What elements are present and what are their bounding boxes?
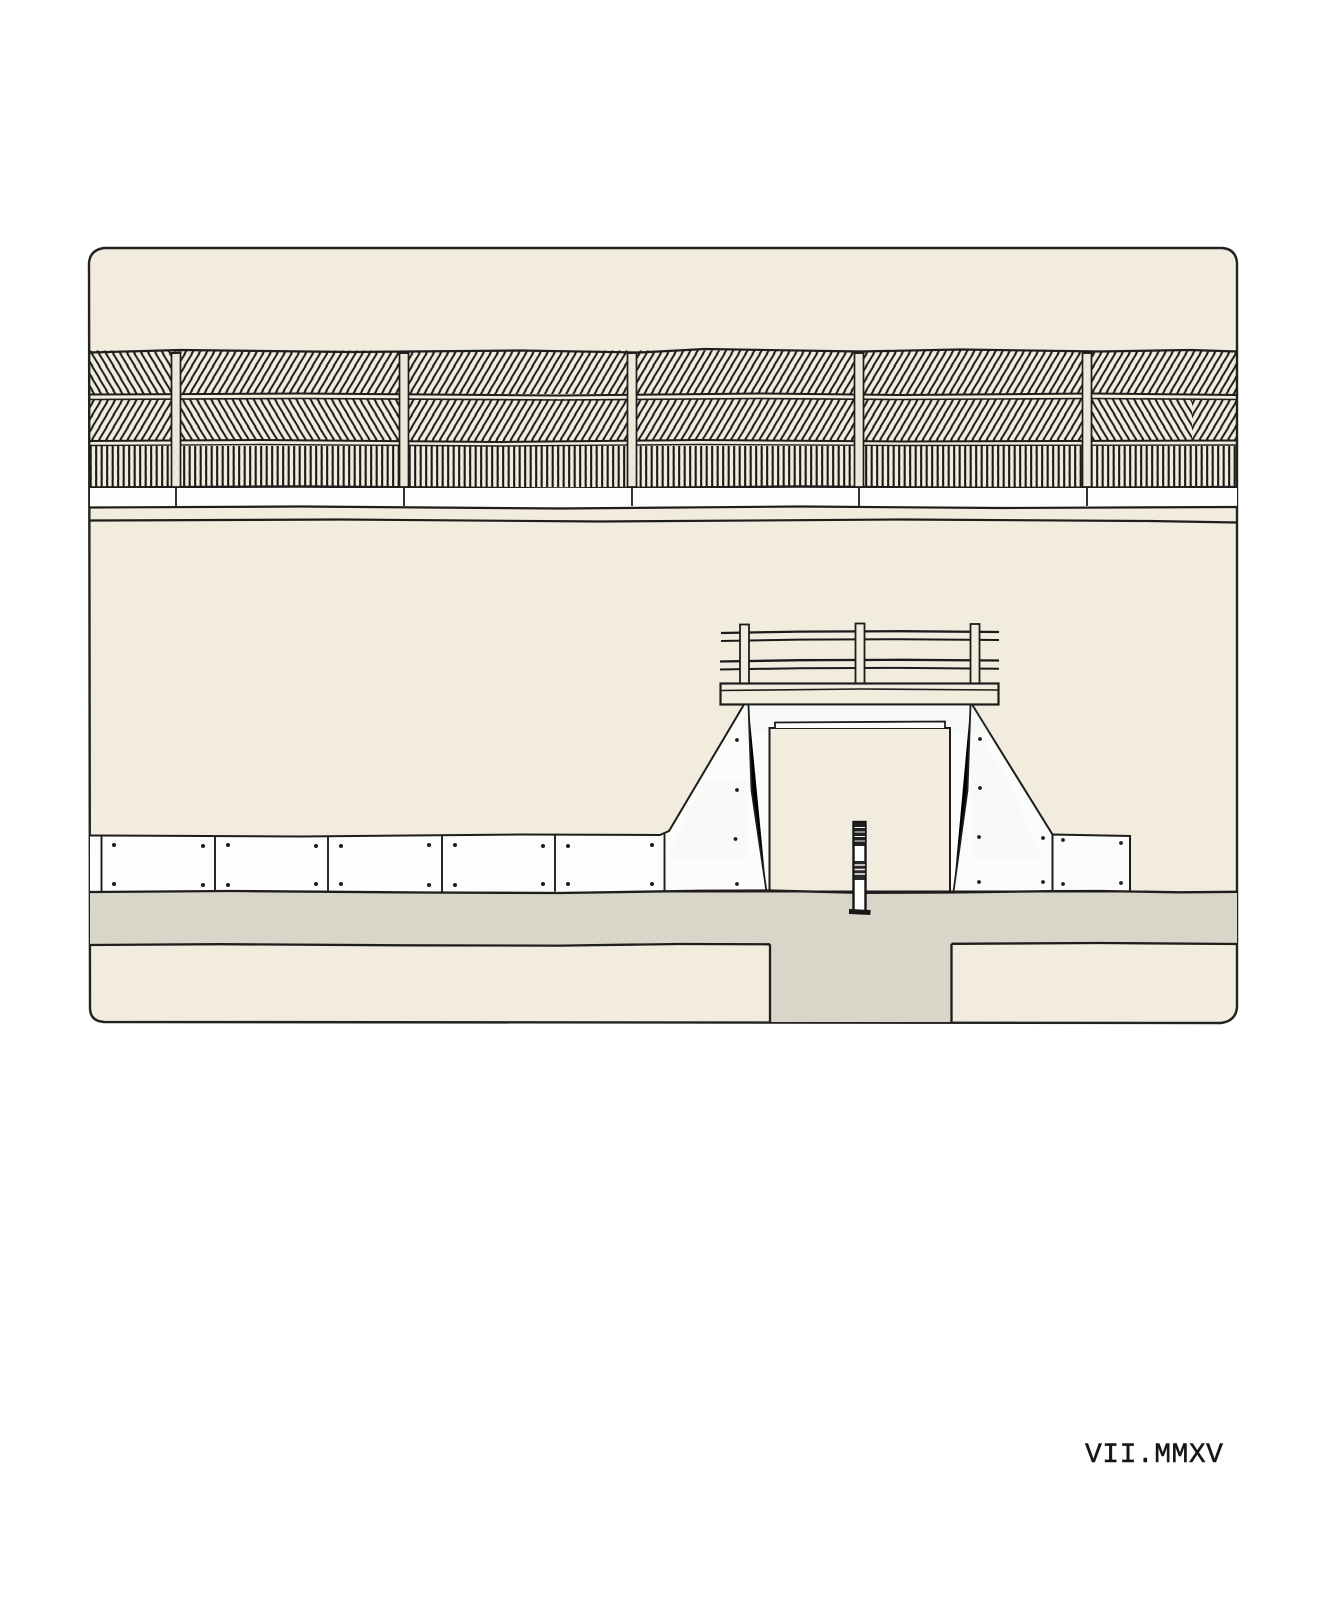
svg-text:VII.MMXV: VII.MMXV xyxy=(1085,1440,1223,1471)
